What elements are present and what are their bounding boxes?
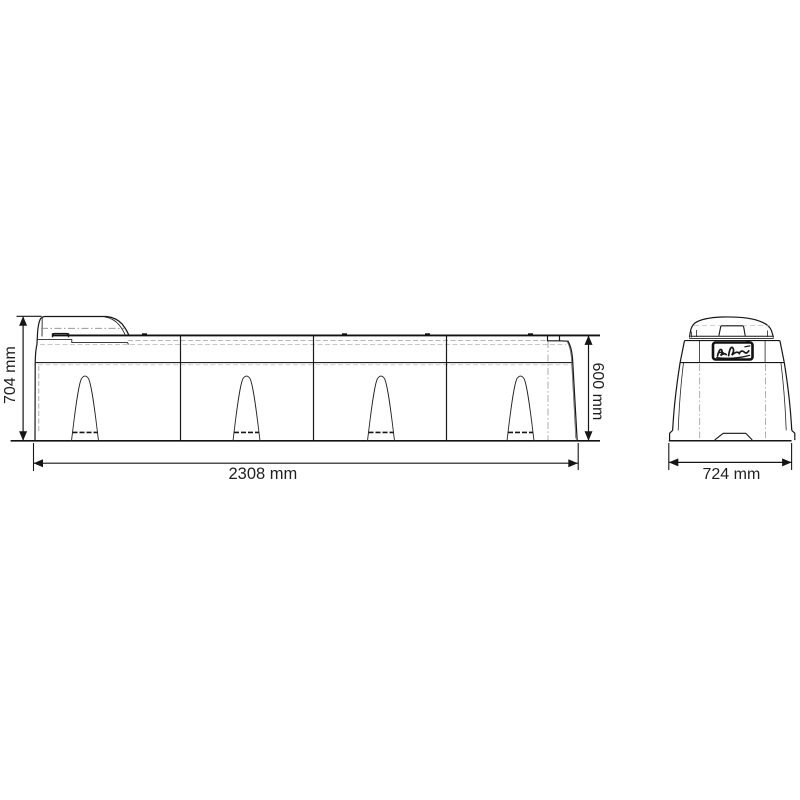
svg-text:2308 mm: 2308 mm — [229, 465, 298, 483]
svg-text:704 mm: 704 mm — [2, 346, 19, 404]
svg-text:600 mm: 600 mm — [589, 363, 606, 421]
svg-text:724 mm: 724 mm — [703, 466, 761, 483]
